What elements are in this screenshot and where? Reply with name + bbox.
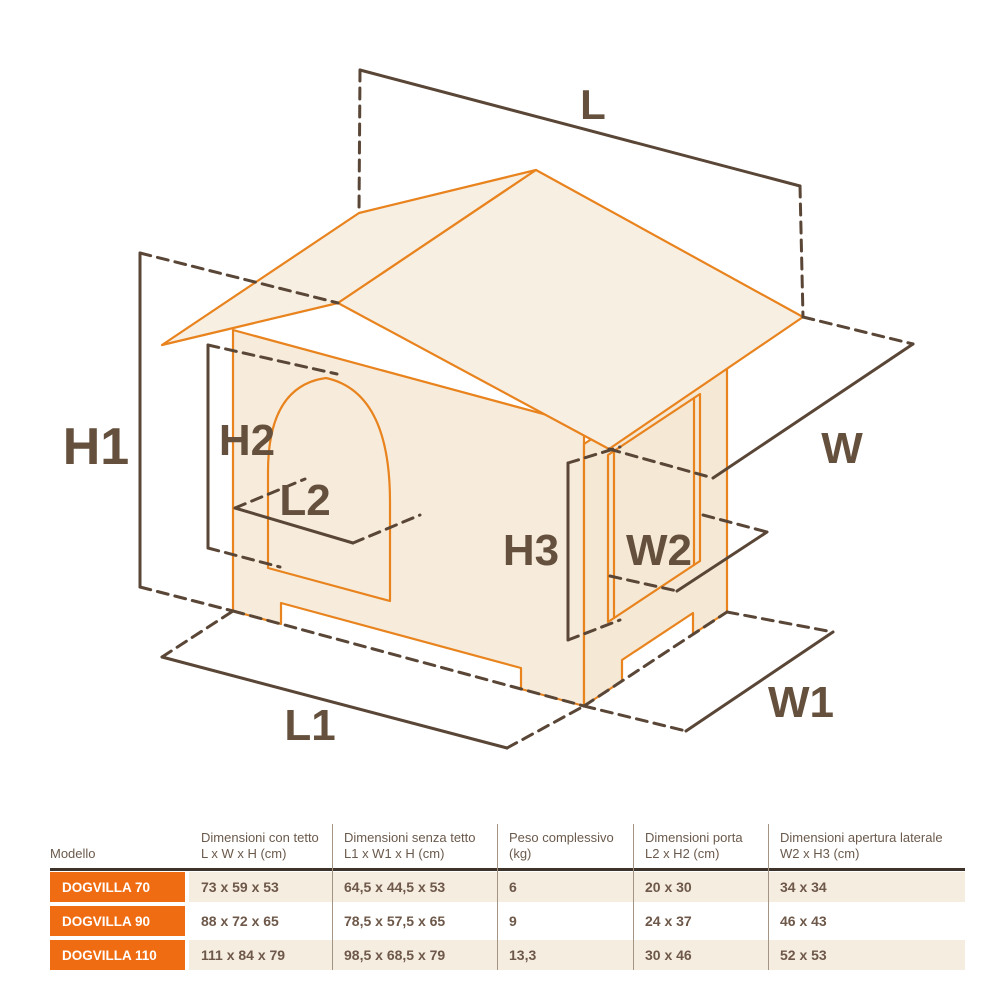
table-cell: 111 x 84 x 79 <box>189 947 332 963</box>
column-separator <box>497 824 498 970</box>
column-header-modello: Modello <box>50 846 189 868</box>
table-cell: 98,5 x 68,5 x 79 <box>332 947 497 963</box>
label-W2: W2 <box>626 526 692 575</box>
table-cell: 78,5 x 57,5 x 65 <box>332 913 497 929</box>
table-cell: 46 x 43 <box>768 913 965 929</box>
table-cell: 88 x 72 x 65 <box>189 913 332 929</box>
model-badge: DOGVILLA 110 <box>50 940 185 970</box>
table-cell: 9 <box>497 913 633 929</box>
table-header-row: Modello Dimensioni con tettoL x W x H (c… <box>50 824 965 868</box>
label-L: L <box>580 81 606 128</box>
table-cell: 13,3 <box>497 947 633 963</box>
label-W1: W1 <box>768 678 834 727</box>
table-cell: 64,5 x 44,5 x 53 <box>332 879 497 895</box>
table-cell: 30 x 46 <box>633 947 768 963</box>
table-cell: 6 <box>497 879 633 895</box>
spec-table: Modello Dimensioni con tettoL x W x H (c… <box>50 824 965 871</box>
column-header-apertura: Dimensioni apertura lateraleW2 x H3 (cm) <box>768 830 965 868</box>
table-row: DOGVILLA 70 73 x 59 x 53 64,5 x 44,5 x 5… <box>50 872 965 902</box>
label-L1: L1 <box>284 701 335 750</box>
spec-sheet-page: L W H1 H2 L2 H3 W2 W1 L1 Modello Dimensi… <box>0 0 1000 1000</box>
column-header-peso: Peso complessivo(kg) <box>497 830 633 868</box>
column-separator <box>768 824 769 970</box>
column-header-dim-con-tetto: Dimensioni con tettoL x W x H (cm) <box>189 830 332 868</box>
table-cell: 73 x 59 x 53 <box>189 879 332 895</box>
model-badge: DOGVILLA 90 <box>50 906 185 936</box>
label-H2: H2 <box>219 416 275 465</box>
table-cell: 20 x 30 <box>633 879 768 895</box>
model-badge: DOGVILLA 70 <box>50 872 185 902</box>
table-cell: 34 x 34 <box>768 879 965 895</box>
table-cell: 52 x 53 <box>768 947 965 963</box>
label-H1: H1 <box>63 418 129 476</box>
header-rule <box>50 868 965 871</box>
label-H3: H3 <box>503 526 559 575</box>
column-separator <box>332 824 333 970</box>
label-W: W <box>821 424 863 473</box>
label-L2: L2 <box>279 476 330 525</box>
table-row: DOGVILLA 110 111 x 84 x 79 98,5 x 68,5 x… <box>50 940 965 970</box>
table-cell: 24 x 37 <box>633 913 768 929</box>
column-header-dim-senza-tetto: Dimensioni senza tettoL1 x W1 x H (cm) <box>332 830 497 868</box>
column-separator <box>633 824 634 970</box>
column-header-porta: Dimensioni portaL2 x H2 (cm) <box>633 830 768 868</box>
table-row: DOGVILLA 90 88 x 72 x 65 78,5 x 57,5 x 6… <box>50 906 965 936</box>
